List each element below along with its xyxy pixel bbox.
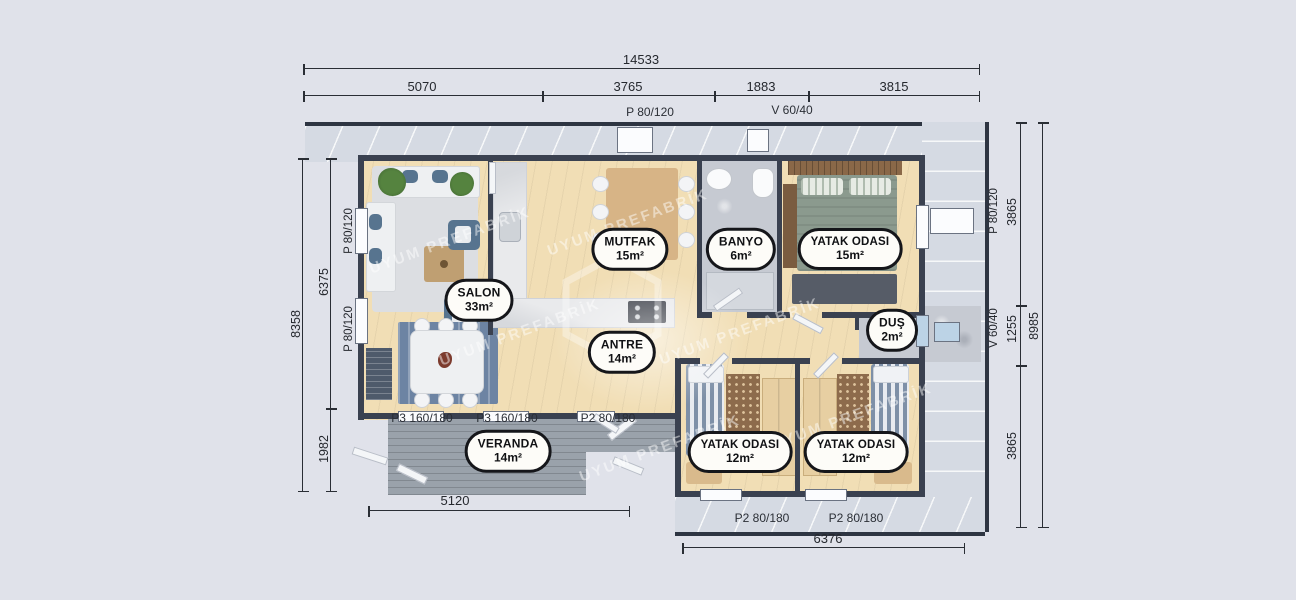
opening-label-door-1: P2 80/180: [735, 511, 790, 525]
opening-label-veranda-2: P3 160/180: [476, 411, 537, 425]
bedroom-exterior-door: [700, 489, 742, 501]
dining-chair: [414, 392, 430, 408]
wall-bedrooms-bottom: [845, 491, 925, 497]
dining-chair: [438, 392, 454, 408]
opening-label-right-window: P 80/120: [988, 166, 1000, 256]
dim-right-total-label: 8985: [1027, 281, 1041, 371]
dim-top-total-line: [303, 68, 980, 69]
pillow: [849, 178, 891, 195]
dim-top-total-label: 14533: [623, 52, 659, 67]
dim-top-seg-label: 5070: [408, 79, 437, 94]
opening-label-top-vent: V 60/40: [771, 103, 812, 117]
room-area: 14m²: [601, 353, 643, 367]
dim-right-seg-label: 3865: [1005, 401, 1019, 491]
room-name: SALON: [458, 287, 501, 301]
bathroom-top-vent: [747, 129, 769, 152]
room-area: 6m²: [719, 250, 763, 264]
wall-top: [358, 155, 925, 161]
wall-kitchen-bath: [697, 155, 702, 315]
salon-cabinet: [366, 348, 392, 400]
dim-right-segments-line: [1020, 122, 1021, 528]
bed-headboard: [788, 160, 902, 175]
room-name: BANYO: [719, 236, 763, 250]
right-window: [916, 205, 929, 249]
dim-right-total-line: [1042, 122, 1043, 528]
room-name: VERANDA: [478, 438, 539, 452]
wall-bedroom-left: [675, 358, 681, 497]
dim-left-total-label: 8358: [289, 279, 303, 369]
door-leaf: [489, 162, 496, 194]
bedroom-wardrobe: [783, 184, 797, 268]
dim-bottom-veranda-line: [368, 510, 630, 511]
room-badge-salon: SALON 33m²: [445, 279, 514, 322]
room-area: 14m²: [478, 452, 539, 466]
dim-right-seg-label: 3865: [1005, 167, 1019, 257]
wall-shower-left: [855, 312, 859, 330]
room-name: ANTRE: [601, 339, 643, 353]
kitchen-chair: [678, 232, 695, 248]
room-badge-mutfak: MUTFAK 15m²: [591, 228, 668, 271]
room-area: 15m²: [811, 249, 890, 263]
room-area: 12m²: [701, 452, 780, 466]
pillow: [873, 366, 909, 383]
wall-bedrooms-bottom: [740, 491, 805, 497]
dim-bottom-bedrooms-line: [682, 547, 965, 548]
dim-bottom-veranda-label: 5120: [441, 493, 470, 508]
left-window: [355, 298, 368, 344]
pillow: [801, 178, 843, 195]
room-badge-banyo: BANYO 6m²: [706, 228, 776, 271]
wall-bedrooms-top: [842, 358, 925, 364]
sofa-cushion: [369, 214, 382, 230]
opening-label-left-window-2: P 80/120: [343, 284, 355, 374]
dim-left-seg-label: 6375: [317, 237, 331, 327]
dim-top-seg-label: 3765: [614, 79, 643, 94]
opening-label-door-2: P2 80/180: [829, 511, 884, 525]
kitchen-chair: [592, 204, 609, 220]
sofa-cushion: [432, 170, 448, 183]
room-badge-veranda: VERANDA 14m²: [465, 430, 552, 473]
opening-label-right-vent: V 60/40: [988, 283, 1000, 373]
left-window: [355, 208, 368, 254]
room-name: DUŞ: [879, 317, 905, 331]
right-vent-window-exterior: [934, 322, 960, 342]
dim-top-segments-line: [303, 95, 980, 96]
right-window-exterior: [930, 208, 974, 234]
dim-left-segments-line: [330, 158, 331, 492]
dim-right-seg-label: 1255: [1005, 284, 1019, 374]
room-badge-yatak-odasi-12-left: YATAK ODASI 12m²: [688, 431, 793, 473]
kitchen-top-window: [617, 127, 653, 153]
floor-plan-canvas: UYUM PREFABRİK UYUM PREFABRİK UYUM PREFA…: [0, 0, 1296, 600]
opening-label-veranda-3: P2 80/180: [581, 411, 636, 425]
dim-top-seg-label: 3815: [880, 79, 909, 94]
room-area: 12m²: [817, 452, 896, 466]
dim-bottom-bedrooms-label: 6376: [814, 531, 843, 546]
kitchen-chair: [592, 176, 609, 192]
coffee-table-decor: [440, 260, 448, 268]
plant: [378, 168, 406, 196]
room-area: 15m²: [604, 250, 655, 264]
dim-left-total-line: [302, 158, 303, 492]
wall-left: [358, 155, 364, 420]
bedroom-exterior-door: [805, 489, 847, 501]
room-badge-yatak-odasi-15: YATAK ODASI 15m²: [798, 228, 903, 270]
opening-label-veranda-1: P3 160/180: [391, 411, 452, 425]
wall-bath-bedroom: [777, 155, 782, 315]
opening-label-left-window-1: P 80/120: [343, 186, 355, 276]
deck-plank: [352, 447, 389, 466]
room-name: MUTFAK: [604, 236, 655, 250]
room-badge-yatak-odasi-12-right: YATAK ODASI 12m²: [804, 431, 909, 473]
dim-left-seg-label: 1982: [317, 404, 331, 494]
wall-hall-top: [697, 312, 712, 318]
dim-top-seg-label: 1883: [747, 79, 776, 94]
room-badge-dus: DUŞ 2m²: [866, 309, 918, 352]
room-area: 33m²: [458, 301, 501, 315]
dining-chair: [462, 392, 478, 408]
room-badge-antre: ANTRE 14m²: [588, 331, 656, 374]
toilet: [752, 168, 774, 198]
wall-bedrooms-bottom: [675, 491, 700, 497]
opening-label-top-door: P 80/120: [626, 105, 674, 119]
room-area: 2m²: [879, 331, 905, 345]
